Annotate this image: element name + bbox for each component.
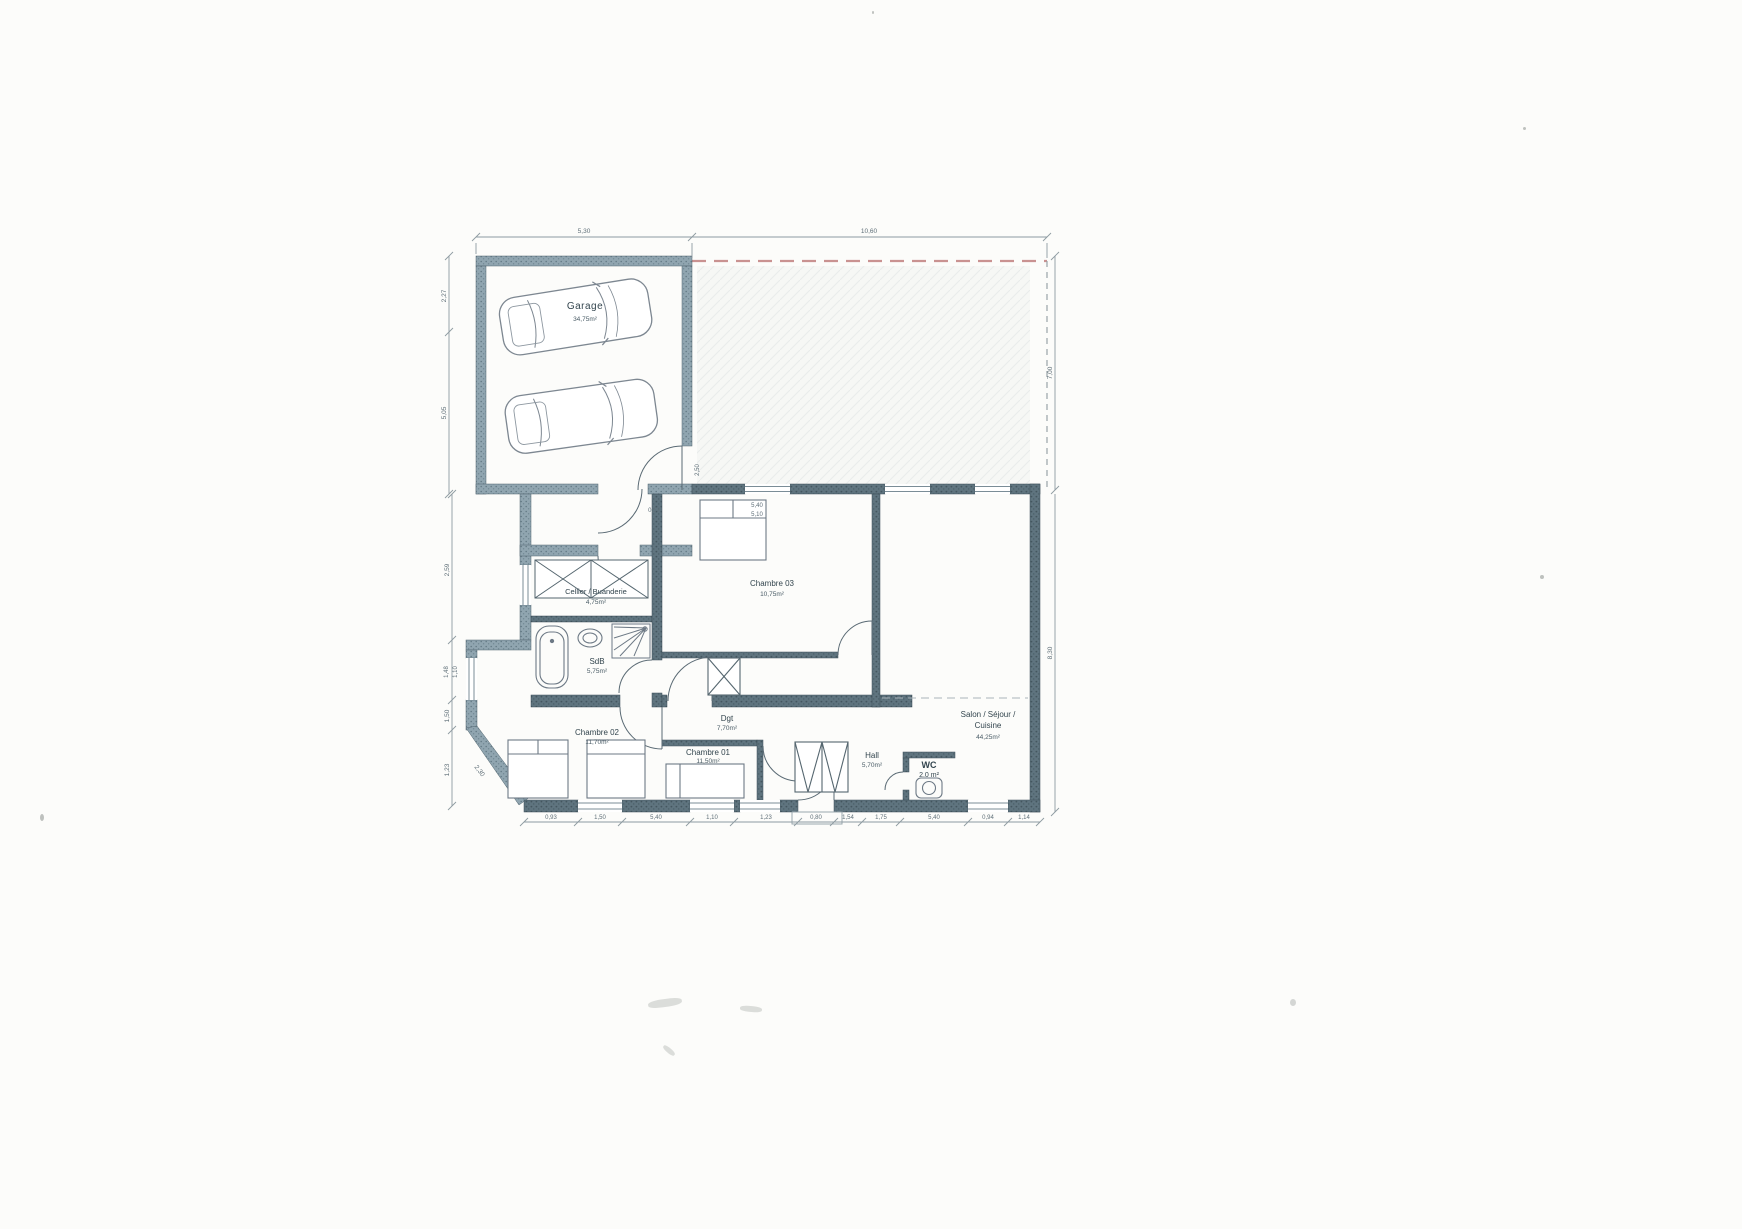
scan-speckle [872,11,874,14]
dim-left-4: 1,48 [444,666,450,678]
chambre03-area: 10,75m² [760,591,785,598]
garage-label: Garage [567,301,603,312]
dim-top-terrace: 10,60 [861,228,878,235]
wardrobe-icon [795,742,848,792]
dgt-label: Dgt [721,714,734,723]
dim-interior-3: 5,10 [751,512,763,518]
dim-bottom-1: 0,93 [545,815,557,821]
car-icon [503,374,660,458]
wc-door-arc-icon [885,772,903,790]
dim-left-1: 2,27 [441,289,448,302]
chambre01-area: 11,50m² [696,758,720,765]
dgt-area: 7,70m² [717,725,738,732]
dim-bottom-4: 1,10 [706,815,718,821]
dim-bottom-7: 1,54 [842,815,854,821]
dim-left-7: 1,23 [444,763,451,776]
chambre03-door-arc-icon [838,621,872,655]
dim-left-3: 2,59 [444,563,451,576]
dim-bottom-11: 1,14 [1018,815,1030,821]
cellier-label: Cellier / Buanderie [565,587,627,596]
garage-area: 34,75m² [573,316,598,323]
chambre02-area: 11,70m² [585,739,609,746]
wc-area: 2.0 m² [919,772,940,779]
dim-bottom-8: 1,75 [875,815,887,821]
shower-icon [612,624,650,658]
scan-speckle [40,814,44,821]
sdb-area: 5,75m² [587,668,608,675]
dim-interior-4: 2,50 [695,464,701,476]
dim-interior-1: 0,57 [648,508,660,514]
dim-bottom-9: 5,40 [928,815,940,821]
dim-bottom-6: 0,80 [810,815,822,821]
hall-label: Hall [865,751,879,760]
sdb-label: SdB [589,657,604,666]
dim-chamfer: 2,30 [473,764,487,779]
closet-icon [708,658,740,695]
floor-plan-drawing: Garage 34,75m² Cellier / Buanderie 4,75m… [0,0,1742,1229]
dim-top-garage: 5,30 [578,228,591,235]
scan-speckle [1540,575,1544,579]
garage-door-arc-icon [638,446,682,490]
dim-interior-2: 5,40 [751,503,763,509]
bed-icon-chambre02-b [587,740,645,798]
cellier-area: 4,75m² [586,599,607,606]
chambre01-label: Chambre 01 [686,748,731,757]
corridor-door-arc-icon [668,657,712,701]
hall-area: 5,70m² [862,762,883,769]
terrace-area [692,261,1047,489]
sink-icon [578,629,602,647]
terrace-floor-hatch [697,266,1030,484]
dim-right-1: 7,00 [1047,366,1054,379]
salon-label-line2: Cuisine [975,721,1002,730]
chambre02-label: Chambre 02 [575,728,620,737]
bed-icon-chambre02-a [508,740,568,798]
dim-bottom-3: 5,40 [650,815,662,821]
scanned-floor-plan-page: Garage 34,75m² Cellier / Buanderie 4,75m… [0,0,1742,1229]
salon-label-line1: Salon / Séjour / [961,710,1016,719]
bath-door-arc-icon [619,660,652,693]
dim-bottom-5: 1,23 [760,815,772,821]
dim-right-2: 8,30 [1047,646,1054,659]
chambre03-label: Chambre 03 [750,579,795,588]
salon-area: 44,25m² [976,734,1001,741]
bed-icon-chambre01 [666,764,744,798]
wc-label: WC [922,760,937,770]
bathtub-icon [536,626,568,688]
scan-speckle [1523,127,1526,130]
dim-left-6: 1,50 [444,709,451,722]
wc-basin-icon [916,778,942,798]
dim-left-2: 5,05 [441,406,448,419]
dim-left-5: 1,10 [453,666,459,678]
bed-icon-chambre03 [700,500,766,560]
hall-door-arc-icon [763,746,798,781]
dim-bottom-10: 0,94 [982,815,994,821]
dim-bottom-2: 1,50 [594,815,606,821]
scan-speckle [1290,999,1296,1006]
